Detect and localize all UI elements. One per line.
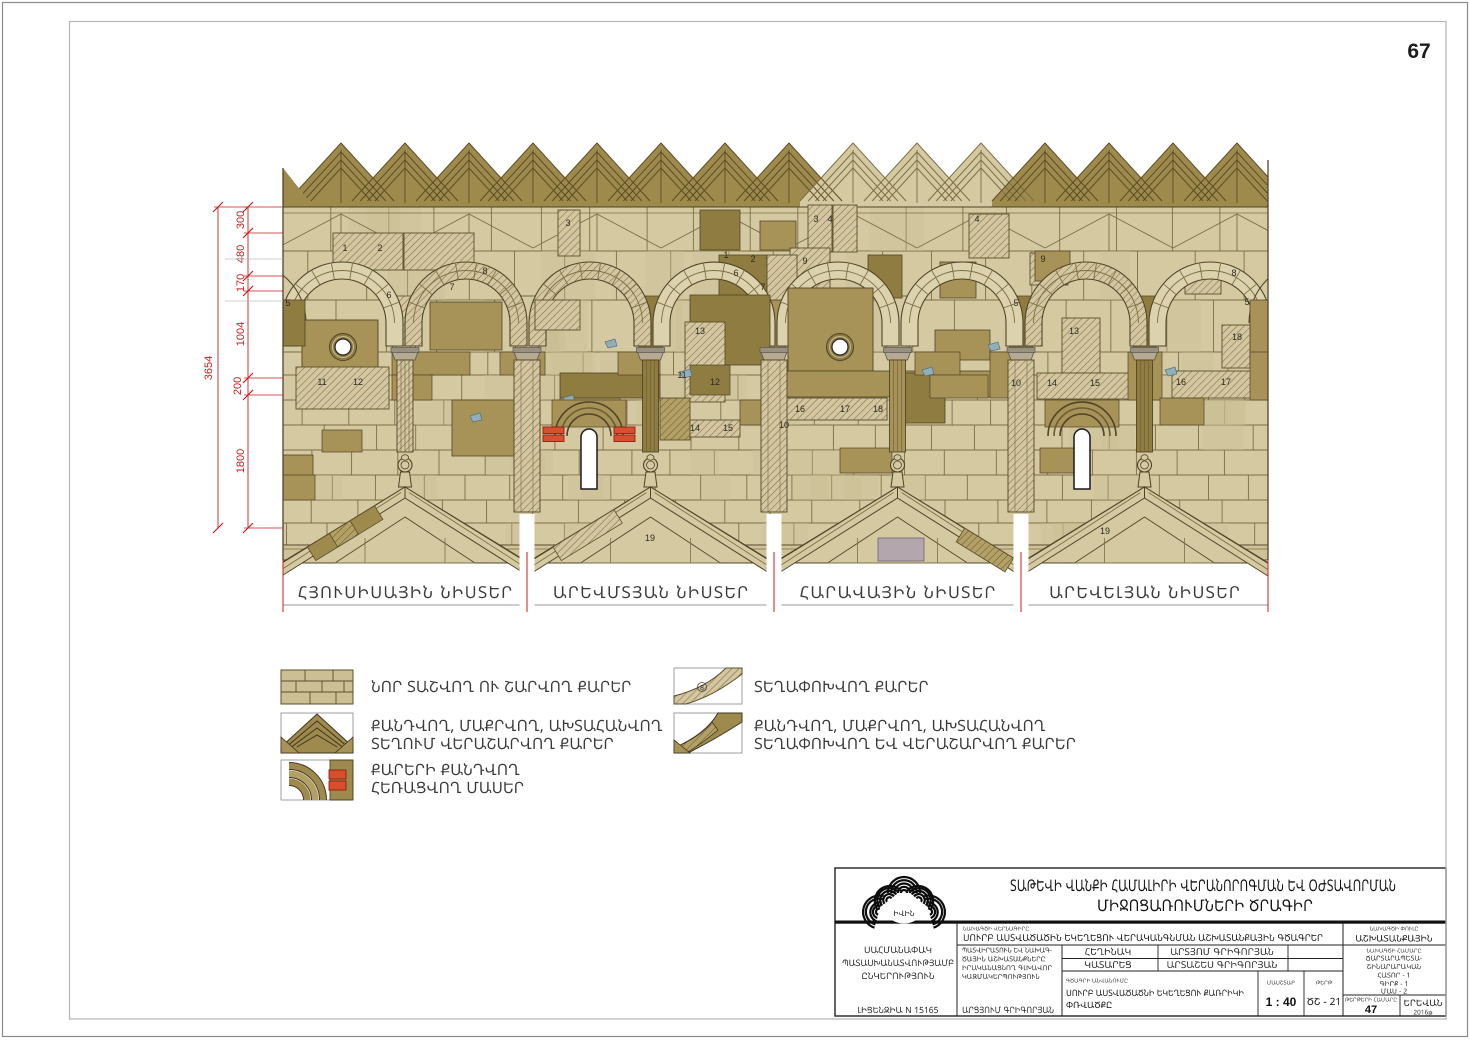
svg-text:170: 170 bbox=[235, 274, 247, 292]
svg-text:12: 12 bbox=[710, 377, 720, 387]
svg-text:5: 5 bbox=[1244, 297, 1249, 307]
svg-text:11: 11 bbox=[677, 370, 686, 380]
svg-text:1: 1 bbox=[723, 250, 728, 260]
svg-text:6: 6 bbox=[386, 290, 391, 300]
svg-text:8: 8 bbox=[482, 266, 487, 276]
svg-text:14: 14 bbox=[690, 423, 700, 433]
svg-text:14: 14 bbox=[1047, 378, 1057, 388]
svg-text:11: 11 bbox=[317, 377, 326, 387]
svg-text:16: 16 bbox=[1176, 377, 1186, 387]
svg-text:3: 3 bbox=[565, 218, 570, 228]
svg-text:17: 17 bbox=[1221, 377, 1231, 387]
svg-text:200: 200 bbox=[232, 377, 244, 395]
svg-text:16: 16 bbox=[795, 404, 805, 414]
svg-text:1: 1 bbox=[342, 243, 347, 253]
svg-text:12: 12 bbox=[353, 377, 363, 387]
svg-text:8: 8 bbox=[1231, 268, 1236, 278]
svg-text:18: 18 bbox=[873, 404, 883, 414]
svg-text:13: 13 bbox=[695, 326, 705, 336]
svg-text:1004: 1004 bbox=[235, 322, 247, 346]
svg-text:2: 2 bbox=[377, 243, 382, 253]
svg-text:4: 4 bbox=[974, 214, 979, 224]
svg-text:19: 19 bbox=[645, 533, 655, 543]
svg-text:15: 15 bbox=[1090, 378, 1100, 388]
svg-text:47: 47 bbox=[1365, 1004, 1377, 1016]
svg-text:10: 10 bbox=[779, 420, 789, 430]
svg-text:7: 7 bbox=[449, 282, 454, 292]
svg-text:5: 5 bbox=[1013, 298, 1018, 308]
svg-text:15: 15 bbox=[723, 423, 733, 433]
svg-text:300: 300 bbox=[235, 211, 247, 229]
svg-text:8: 8 bbox=[700, 685, 704, 692]
svg-text:19: 19 bbox=[1100, 526, 1110, 536]
svg-text:17: 17 bbox=[840, 404, 850, 414]
svg-text:18: 18 bbox=[1232, 332, 1242, 342]
svg-text:480: 480 bbox=[235, 245, 247, 263]
svg-text:1800: 1800 bbox=[235, 449, 247, 473]
svg-text:9: 9 bbox=[1040, 254, 1045, 264]
svg-text:6: 6 bbox=[733, 268, 738, 278]
svg-text:4: 4 bbox=[827, 214, 832, 224]
svg-text:2: 2 bbox=[750, 254, 755, 264]
svg-text:10: 10 bbox=[1011, 378, 1021, 388]
svg-text:3654: 3654 bbox=[203, 356, 215, 380]
svg-text:67: 67 bbox=[1407, 40, 1430, 63]
svg-text:5: 5 bbox=[285, 298, 290, 308]
svg-text:7: 7 bbox=[760, 282, 765, 292]
svg-text:13: 13 bbox=[1069, 326, 1079, 336]
svg-text:1 : 40: 1 : 40 bbox=[1266, 995, 1297, 1009]
svg-text:9: 9 bbox=[802, 256, 807, 266]
svg-text:3: 3 bbox=[813, 214, 818, 224]
